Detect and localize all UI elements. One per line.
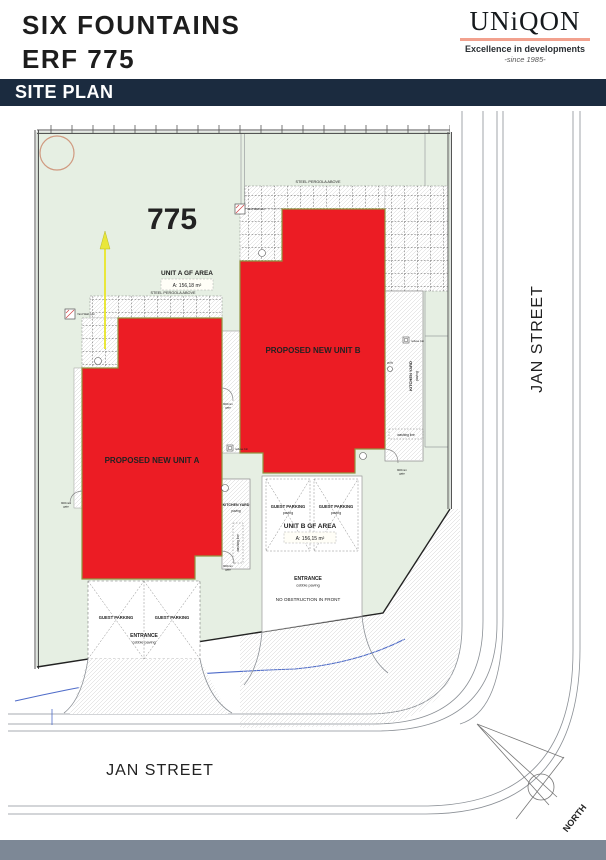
unit-a-label: PROPOSED NEW UNIT A (105, 456, 200, 465)
unit-b-area-value: A: 156,15 m² (296, 536, 325, 542)
unit-a-area-title: UNIT A GF AREA (161, 270, 213, 277)
guest-parking-a2: GUEST PARKING (155, 615, 190, 620)
guest-parking-b2: GUEST PARKING (319, 504, 354, 509)
side-passage (222, 331, 240, 453)
kitchen-yard-b-paving: paving (415, 371, 419, 381)
svg-text:washing line: washing line (236, 534, 240, 552)
svg-text:gate: gate (225, 406, 231, 410)
kitchen-yard-a-label: KITCHEN YARD (223, 503, 250, 507)
erf-number: 775 (147, 203, 197, 236)
kitchen-yard-a (222, 479, 250, 569)
site-plan-canvas: Yard Wall over Yard Wall over refuse bin… (8, 111, 598, 840)
svg-text:Yard Wall over: Yard Wall over (77, 312, 95, 316)
driveway-unit-a (64, 659, 232, 714)
entrance-a-paving: cobble paving (132, 641, 155, 645)
svg-text:Yard Wall over: Yard Wall over (247, 207, 265, 211)
svg-text:gate: gate (63, 505, 69, 509)
project-title-line2: ERF 775 (22, 42, 240, 76)
jan-street-bottom: JAN STREET (106, 762, 214, 779)
pergola-label-b: STEEL PERGOLA ABOVE (295, 180, 340, 184)
north-label: NORTH (561, 802, 589, 833)
document-header: SIX FOUNTAINS ERF 775 UNiQON Excellence … (0, 0, 606, 79)
unit-b-area-title: UNIT B GF AREA (284, 523, 337, 530)
svg-text:gate: gate (399, 472, 405, 476)
entrance-a: ENTRANCE (130, 633, 158, 639)
logo-since: -since 1985- (460, 55, 590, 64)
logo-accent-rule (460, 38, 590, 41)
pergola-label-a: STEEL PERGOLA ABOVE (150, 291, 195, 295)
svg-text:refuse bin: refuse bin (411, 339, 425, 343)
kitchen-yard-b-label: KITCHEN YARD (408, 361, 413, 391)
kitchen-yard-a-paving: paving (231, 509, 241, 513)
company-logo: UNiQON Excellence in developments -since… (460, 6, 590, 64)
project-title: SIX FOUNTAINS ERF 775 (22, 8, 240, 76)
unit-a-area-value: A: 156,18 m² (173, 283, 202, 289)
left-side-strip (74, 368, 82, 508)
site-plan-drawing: Yard Wall over Yard Wall over refuse bin… (8, 111, 598, 840)
jan-street-right: JAN STREET (529, 285, 546, 393)
guest-parking-b2-paving: paving (331, 511, 341, 515)
parking-unit-a (88, 581, 200, 659)
project-title-line1: SIX FOUNTAINS (22, 8, 240, 42)
svg-text:washing line: washing line (397, 433, 415, 437)
guest-parking-a1: GUEST PARKING (99, 615, 134, 620)
guest-parking-b1: GUEST PARKING (271, 504, 306, 509)
unit-b-label: PROPOSED NEW UNIT B (265, 346, 360, 355)
svg-text:gate: gate (225, 568, 231, 572)
entrance-b-paving: cobble paving (296, 584, 319, 588)
svg-text:gully: gully (387, 361, 394, 365)
entrance-b: ENTRANCE (294, 576, 322, 582)
logo-tagline: Excellence in developments (460, 44, 590, 54)
guest-parking-b1-paving: paving (283, 511, 293, 515)
section-banner: SITE PLAN (0, 79, 606, 106)
company-logo-name: UNiQON (460, 6, 590, 37)
no-obstruction-note: NO OBSTRUCTION IN FRONT (276, 597, 341, 602)
svg-text:refuse bin: refuse bin (235, 447, 249, 451)
